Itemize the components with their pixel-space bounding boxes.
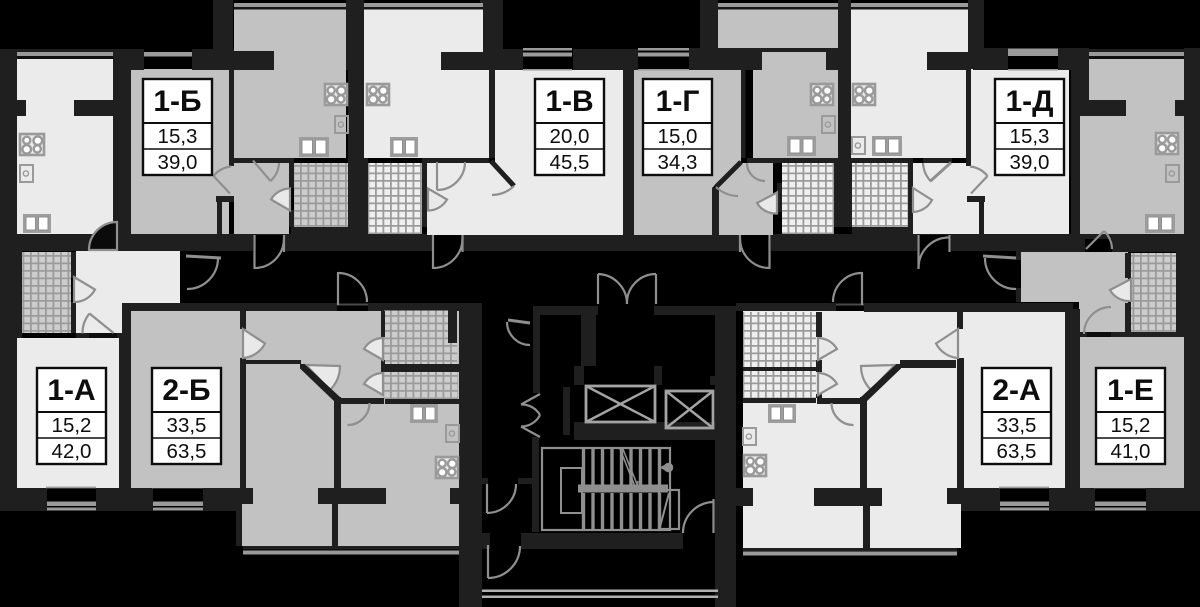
svg-text:2-А: 2-А — [992, 374, 1040, 407]
svg-text:34,3: 34,3 — [658, 151, 698, 174]
svg-text:15,3: 15,3 — [158, 125, 198, 148]
svg-text:15,2: 15,2 — [1111, 414, 1151, 437]
svg-text:42,0: 42,0 — [52, 440, 92, 463]
svg-text:1-Е: 1-Е — [1107, 374, 1154, 407]
svg-text:39,0: 39,0 — [158, 151, 198, 174]
svg-text:63,5: 63,5 — [997, 440, 1037, 463]
svg-text:15,3: 15,3 — [1010, 125, 1050, 148]
svg-text:41,0: 41,0 — [1111, 440, 1151, 463]
svg-text:1-Г: 1-Г — [656, 85, 700, 118]
svg-text:20,0: 20,0 — [550, 125, 590, 148]
svg-text:33,5: 33,5 — [167, 414, 207, 437]
svg-text:1-А: 1-А — [47, 374, 95, 407]
svg-text:2-Б: 2-Б — [162, 374, 210, 407]
svg-text:39,0: 39,0 — [1010, 151, 1050, 174]
svg-text:15,0: 15,0 — [658, 125, 698, 148]
svg-text:33,5: 33,5 — [997, 414, 1037, 437]
svg-text:1-В: 1-В — [545, 85, 593, 118]
svg-text:15,2: 15,2 — [52, 414, 92, 437]
svg-text:1-Б: 1-Б — [153, 85, 201, 118]
svg-text:63,5: 63,5 — [167, 440, 207, 463]
svg-text:45,5: 45,5 — [550, 151, 590, 174]
svg-text:1-Д: 1-Д — [1005, 85, 1053, 118]
